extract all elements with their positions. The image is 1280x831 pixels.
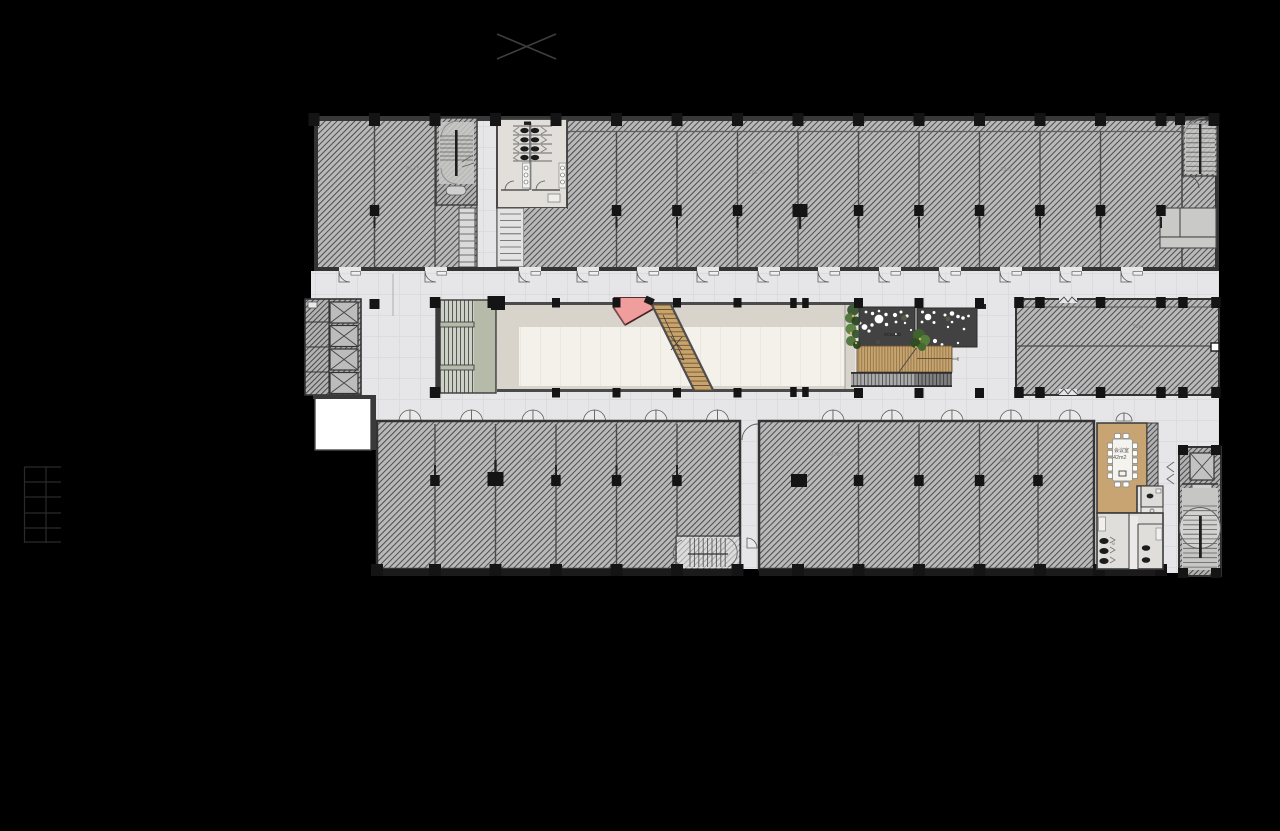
- svg-text:会议室: 会议室: [1114, 447, 1129, 454]
- svg-text:98㎡: 98㎡: [1000, 456, 1012, 464]
- svg-text:43㎡: 43㎡: [1000, 165, 1012, 173]
- svg-text:M: M: [1112, 542, 1115, 546]
- svg-text:90㎡: 90㎡: [1133, 323, 1144, 330]
- svg-text:#CS12D: #CS12D: [884, 332, 902, 337]
- svg-text:42m2: 42m2: [1113, 455, 1127, 461]
- svg-text:86.75: 86.75: [406, 166, 420, 172]
- svg-text:173.75: 173.75: [748, 170, 765, 176]
- svg-text:92㎡: 92㎡: [830, 450, 842, 458]
- svg-text:87㎡: 87㎡: [528, 456, 540, 464]
